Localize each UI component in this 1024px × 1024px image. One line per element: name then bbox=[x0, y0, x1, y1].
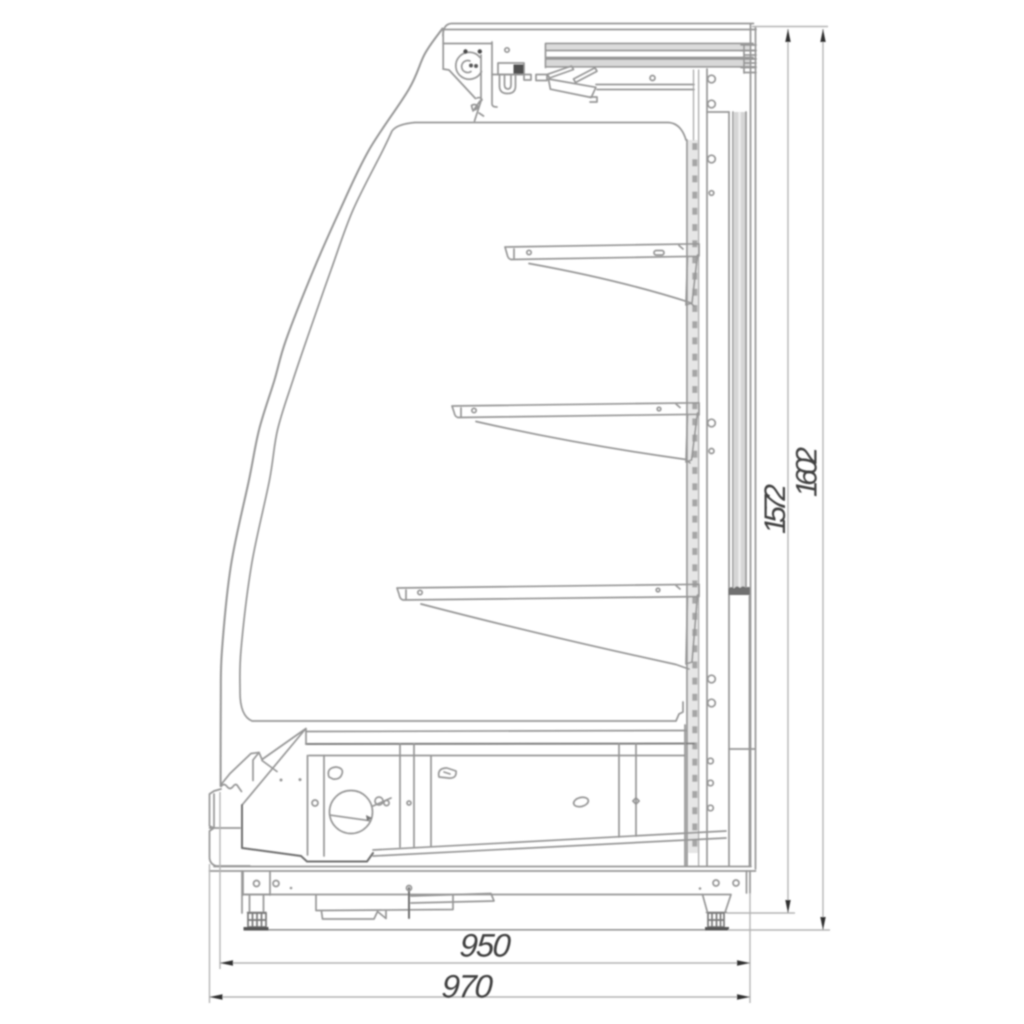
svg-text:970: 970 bbox=[441, 969, 495, 1005]
svg-text:1602: 1602 bbox=[791, 447, 824, 497]
svg-text:950: 950 bbox=[459, 928, 513, 964]
svg-text:1572: 1572 bbox=[759, 484, 792, 534]
